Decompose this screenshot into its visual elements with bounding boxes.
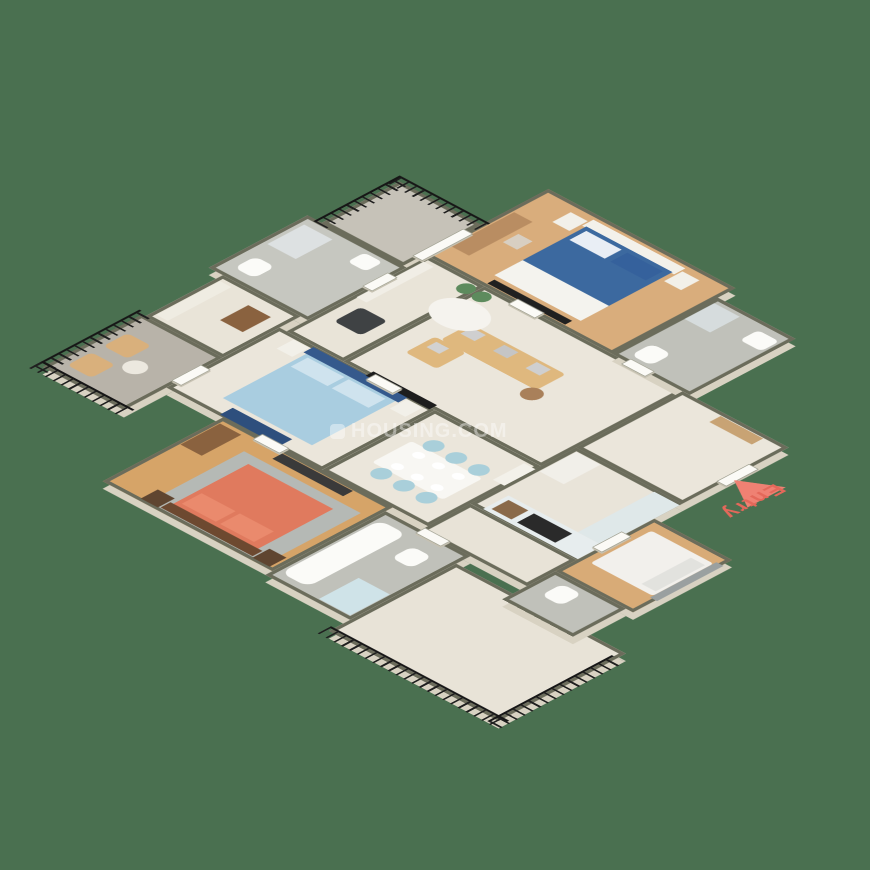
isometric-floorplan: Entry [0,118,870,792]
watermark-logo-icon [330,424,345,439]
floorplan-scene: Entry HOUSING.COM [0,0,870,870]
watermark: HOUSING.COM [330,420,508,443]
watermark-text: HOUSING.COM [351,420,508,443]
